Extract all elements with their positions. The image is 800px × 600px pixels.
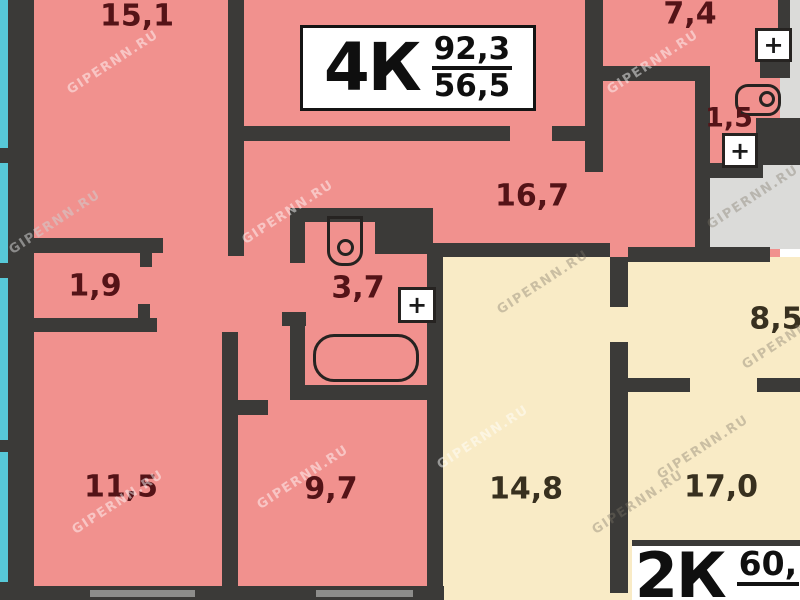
wall-bath37-left-lower — [290, 326, 305, 392]
balcony-strip — [0, 0, 8, 600]
room-area-label: 8,5 — [749, 302, 800, 337]
room-area-label: 11,5 — [84, 470, 158, 505]
room-area-label: 17,0 — [684, 470, 758, 505]
wall-labelroom-bottom — [244, 126, 510, 141]
room-area-label: 1,9 — [68, 269, 121, 304]
room-area-label: 3,7 — [331, 271, 384, 306]
window-segment — [90, 590, 195, 597]
apartment-areas: 92,3 56,5 — [432, 33, 513, 104]
room-area-label: 15,1 — [100, 0, 174, 34]
vent-plus-icon: + — [722, 133, 758, 168]
wall-exterior-left — [8, 0, 34, 600]
wall-room74-bottom — [603, 66, 710, 81]
floorplan-canvas: + + + 4К 92,3 56,5 2К 60, 15,17,41,516,7… — [0, 0, 800, 600]
window-segment — [316, 590, 413, 597]
wall-corridor19-top — [33, 238, 163, 253]
wall-2k-hall-right-lower — [610, 342, 628, 593]
apartment-2k-legend: 2К 60, — [632, 546, 800, 600]
wall-2k-hall-right-upper — [610, 257, 628, 307]
window-post — [0, 440, 8, 452]
door-post — [138, 304, 150, 318]
vent-shaft-right — [756, 118, 800, 165]
vent-plus-icon: + — [398, 287, 436, 323]
apartment-areas: 60, — [737, 546, 799, 586]
window-post — [0, 148, 8, 163]
bathtub-icon — [313, 334, 419, 382]
toilet-icon — [327, 216, 363, 266]
wall-labelroom-bottom-stub — [552, 126, 585, 141]
room-area-label: 1,5 — [705, 103, 753, 134]
room-area-label: 16,7 — [495, 179, 569, 214]
room-area-label: 14,8 — [489, 472, 563, 507]
wall-room15-right — [228, 0, 244, 256]
apartment-4k-legend: 4К 92,3 56,5 — [300, 25, 536, 111]
wall-right-stub — [760, 60, 790, 78]
wall-corridor19-bottom — [33, 318, 157, 332]
vent-shaft-bath37 — [375, 208, 433, 254]
door-post — [140, 253, 152, 267]
wall-bath37-left-upper — [290, 208, 305, 263]
apartment-type: 4К — [324, 35, 420, 101]
wall-2k-top — [628, 247, 770, 262]
wall-room74-left — [585, 0, 603, 172]
wall-bath37-bottom — [290, 385, 443, 400]
room-area-label: 7,4 — [663, 0, 716, 32]
apartment-type: 2К — [635, 545, 725, 600]
window-post — [0, 582, 8, 600]
wall-85-170-left — [628, 378, 690, 392]
wall-room97-door-stub — [238, 400, 268, 415]
window-post — [0, 263, 8, 278]
vent-plus-icon: + — [755, 28, 792, 62]
wall-room115-right — [222, 332, 238, 588]
room-area-label: 9,7 — [304, 472, 357, 507]
wall-main-horizontal — [427, 243, 610, 257]
door-post — [282, 312, 306, 326]
wall-85-170-right — [757, 378, 800, 392]
